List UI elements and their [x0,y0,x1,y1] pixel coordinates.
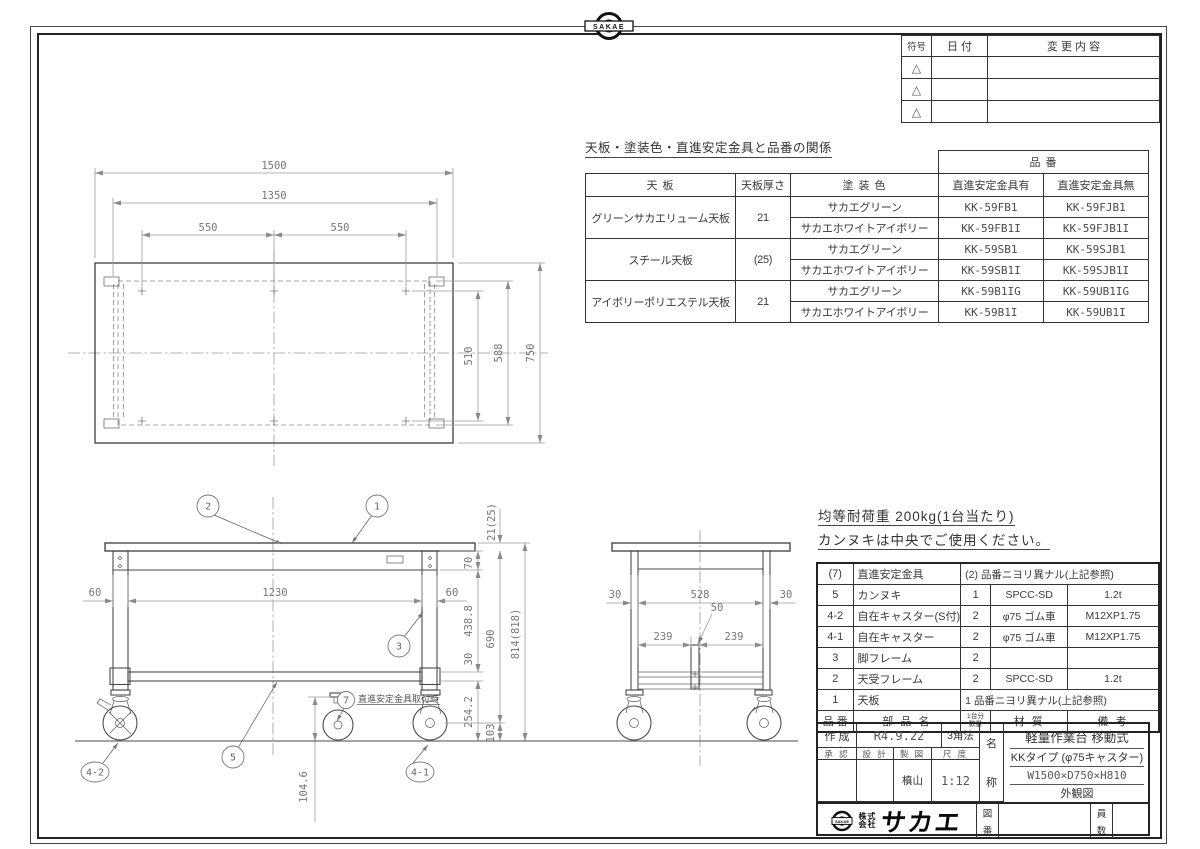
paint-color: サカエホワイトアイボリー [791,260,939,281]
revision-change-cell [988,57,1160,79]
bom-part-name: 脚フレーム [853,648,961,669]
created-label: 作 成 [818,724,857,748]
bom-material [991,648,1068,669]
bom-part-name: 天受フレーム [853,669,961,690]
bom-remark: 1.2t [1068,585,1159,606]
revision-date-cell [932,57,988,79]
bom-merged-note: 1 品番ニヨリ異ナル(上記参照) [961,690,1159,711]
part-number-without: KK-59SJB1 [1044,239,1149,260]
relation-table: 品 番 天 板 天板厚さ 塗 装 色 直進安定金具有 直進安定金具無 グリーンサ… [585,150,1149,323]
paint-color: サカエグリーン [791,281,939,302]
member-no-label: 員数 [1091,802,1113,838]
revision-col-symbol: 符号 [902,36,932,57]
bom-no: (7) [817,563,853,585]
product-name-area: 軽量作業台 移動式 KKタイプ (φ75キャスター) W1500×D750×H8… [1004,724,1150,802]
paint-color: サカエホワイトアイボリー [791,302,939,323]
part-number-with: KK-59SB1I [939,260,1044,281]
bom-part-name: 自在キャスター [853,627,961,648]
name-label-vertical: 名 称 [980,724,1004,802]
part-number-without: KK-59FJB1I [1044,218,1149,239]
drawing-type: 外観図 [1010,784,1144,802]
bom-no: 4-2 [817,606,853,627]
load-capacity-note: 均等耐荷重 200kg(1台当たり) [818,505,1015,526]
product-title: 軽量作業台 移動式 [1010,724,1144,749]
company-prefix: 株式 会社 [858,813,876,830]
bom-table: (7) 直進安定金具 (2) 品番ニヨリ異ナル(上記参照) 5 カンヌキ 1 S… [816,562,1160,733]
drawing-sheet: SAKAE 1500 1350 [0,0,1200,849]
tenban-name: スチール天板 [586,239,736,281]
bom-no: 2 [817,669,853,690]
tenban-name: グリーンサカエリューム天板 [586,197,736,239]
bom-remark [1068,648,1159,669]
name-label-1: 名 [986,735,997,751]
revision-change-cell [988,79,1160,101]
tenban-thickness: (25) [736,239,791,281]
bom-material: SPCC-SD [991,585,1068,606]
tenban-thickness: 21 [736,281,791,323]
bom-qty: 1 [961,585,991,606]
relation-blank-cell [586,151,939,174]
revision-date-cell [932,79,988,101]
kannuki-usage-note: カンヌキは中央でご使用ください。 [818,529,1050,550]
drafter-name: 槙山 [894,760,932,802]
tenban-thickness: 21 [736,197,791,239]
bom-remark: M12XP1.75 [1068,606,1159,627]
product-type: KKタイプ (φ75キャスター) [1010,748,1144,767]
part-number-without: KK-59SJB1I [1044,260,1149,281]
part-number-without: KK-59FJB1 [1044,197,1149,218]
paint-color: サカエグリーン [791,197,939,218]
revision-symbol: △ [902,57,932,79]
bom-part-name: 自在キャスター(S付) [853,606,961,627]
revision-table: 符号 日 付 変 更 内 容 △ △ △ [901,35,1160,123]
draft-label: 製 図 [894,748,932,760]
svg-text:SAKAE: SAKAE [835,819,849,824]
bom-part-name: カンヌキ [853,585,961,606]
bom-merged-note: (2) 品番ニヨリ異ナル(上記参照) [961,563,1159,585]
revision-date-cell [932,101,988,123]
bom-material: φ75 ゴム車 [991,627,1068,648]
company-logo: SAKAE 株式 会社 サカエ [818,802,977,838]
scale-label: 尺 度 [932,748,980,760]
part-number-with: KK-59FB1 [939,197,1044,218]
bom-material: SPCC-SD [991,669,1068,690]
tenban-name: アイボリーポリエステル天板 [586,281,736,323]
revision-col-change: 変 更 内 容 [988,36,1160,57]
part-number-with: KK-59B1IG [939,281,1044,302]
paint-color: サカエホワイトアイボリー [791,218,939,239]
bom-qty: 2 [961,669,991,690]
revision-col-date: 日 付 [932,36,988,57]
bom-no: 3 [817,648,853,669]
name-label-2: 称 [986,774,997,790]
relation-col-without: 直進安定金具無 [1044,174,1149,197]
drawing-no-value [999,802,1091,838]
part-number-with: KK-59B1I [939,302,1044,323]
sakae-logo-roundel: SAKAE [831,810,853,832]
bom-no: 4-1 [817,627,853,648]
bom-no: 1 [817,690,853,711]
scale-value: 1:12 [932,760,980,802]
title-block: 作 成 R4.9.22 3角法 承 認 設 計 製 図 尺 度 槙山 1:12 … [816,722,1150,836]
part-number-with: KK-59FB1I [939,218,1044,239]
bom-qty: 2 [961,648,991,669]
revision-symbol: △ [902,101,932,123]
relation-col-tenban: 天 板 [586,174,736,197]
paint-color: サカエグリーン [791,239,939,260]
relation-col-with: 直進安定金具有 [939,174,1044,197]
product-size: W1500×D750×H810 [1010,766,1144,785]
relation-col-thickness: 天板厚さ [736,174,791,197]
revision-symbol: △ [902,79,932,101]
part-number-with: KK-59SB1 [939,239,1044,260]
approve-label: 承 認 [818,748,857,760]
drawing-no-label: 図番 [977,802,999,838]
bom-qty: 2 [961,627,991,648]
projection-method: 3角法 [942,724,980,748]
bom-part-name: 直進安定金具 [853,563,961,585]
bom-remark: 1.2t [1068,669,1159,690]
revision-change-cell [988,101,1160,123]
member-no-value [1113,802,1148,838]
part-number-without: KK-59UB1I [1044,302,1149,323]
relation-col-hinban: 品 番 [939,151,1149,174]
bom-part-name: 天板 [853,690,961,711]
approve-value [818,760,857,802]
bom-material: φ75 ゴム車 [991,606,1068,627]
bom-qty: 2 [961,606,991,627]
bom-remark: M12XP1.75 [1068,627,1159,648]
design-label: 設 計 [857,748,894,760]
company-name: サカエ [879,803,965,839]
part-number-without: KK-59UB1IG [1044,281,1149,302]
bom-no: 5 [817,585,853,606]
relation-col-color: 塗 装 色 [791,174,939,197]
load-notes: 均等耐荷重 200kg(1台当たり) カンヌキは中央でご使用ください。 [818,505,1050,553]
design-value [857,760,894,802]
created-date: R4.9.22 [857,724,942,748]
